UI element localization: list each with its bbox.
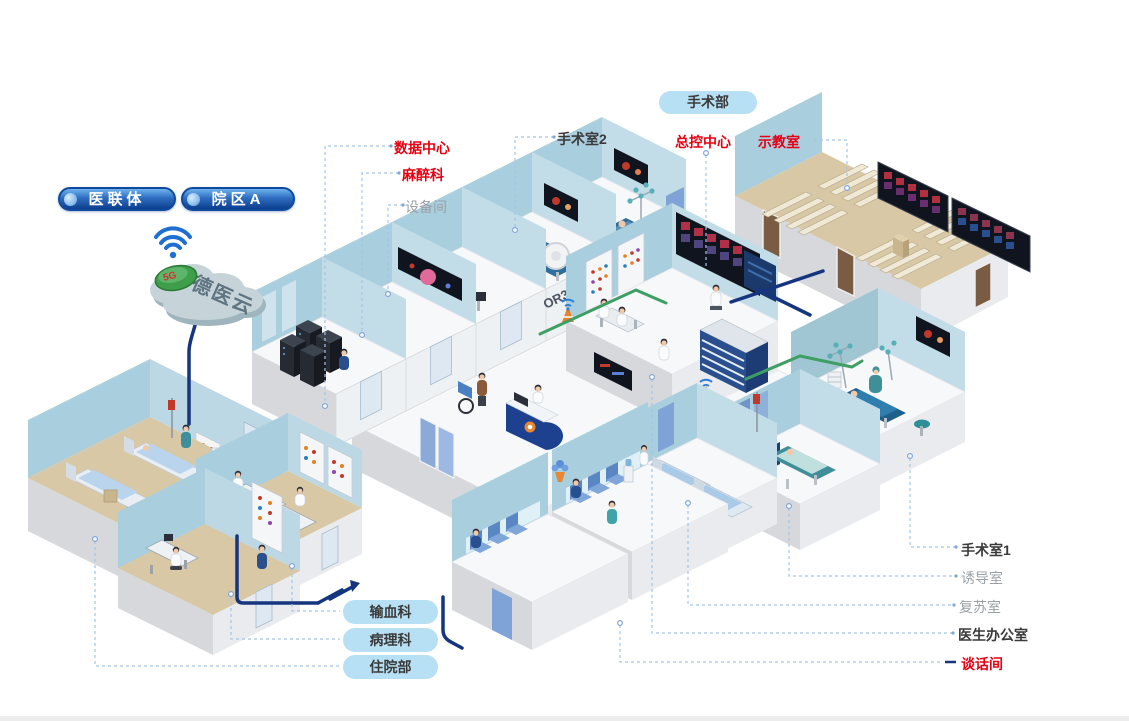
label-operating-room-2: 手术室2 [557, 129, 607, 149]
label-equipment-room: 设备间 [405, 197, 447, 217]
wifi-icon [156, 228, 190, 258]
label-recovery-room: 复苏室 [959, 597, 1001, 617]
badge-medical-alliance: 医联体 [58, 187, 176, 211]
classroom-door [837, 247, 854, 296]
badge-blood-transfusion: 输血科 [343, 600, 438, 624]
hospital-cloud-diagram: OR3 OR2 [0, 0, 1129, 721]
classroom-side-door [975, 262, 991, 308]
doctor-at-door [640, 445, 648, 465]
label-anesthesiology: 麻醉科 [402, 165, 444, 185]
badge-pathology: 病理科 [343, 628, 438, 652]
badge-campus-a: 院区A [181, 187, 295, 211]
cloud: 德医云 5G [150, 262, 266, 326]
label-demo-classroom: 示教室 [758, 132, 800, 152]
label-master-control-center: 总控中心 [675, 132, 731, 152]
label-data-center: 数据中心 [394, 138, 450, 158]
bottom-divider [0, 716, 1129, 721]
label-induction-room: 诱导室 [961, 568, 1003, 588]
badge-inpatient-department: 住院部 [343, 655, 438, 679]
label-talk-room: 谈话间 [961, 654, 1003, 674]
badge-surgery-department: 手术部 [659, 91, 757, 114]
recovery-door [658, 402, 674, 452]
nightstand [104, 490, 117, 502]
lab-door [256, 584, 272, 628]
label-operating-room-1: 手术室1 [961, 540, 1011, 560]
label-doctor-office: 医生办公室 [958, 625, 1028, 645]
lab-door [322, 526, 338, 570]
